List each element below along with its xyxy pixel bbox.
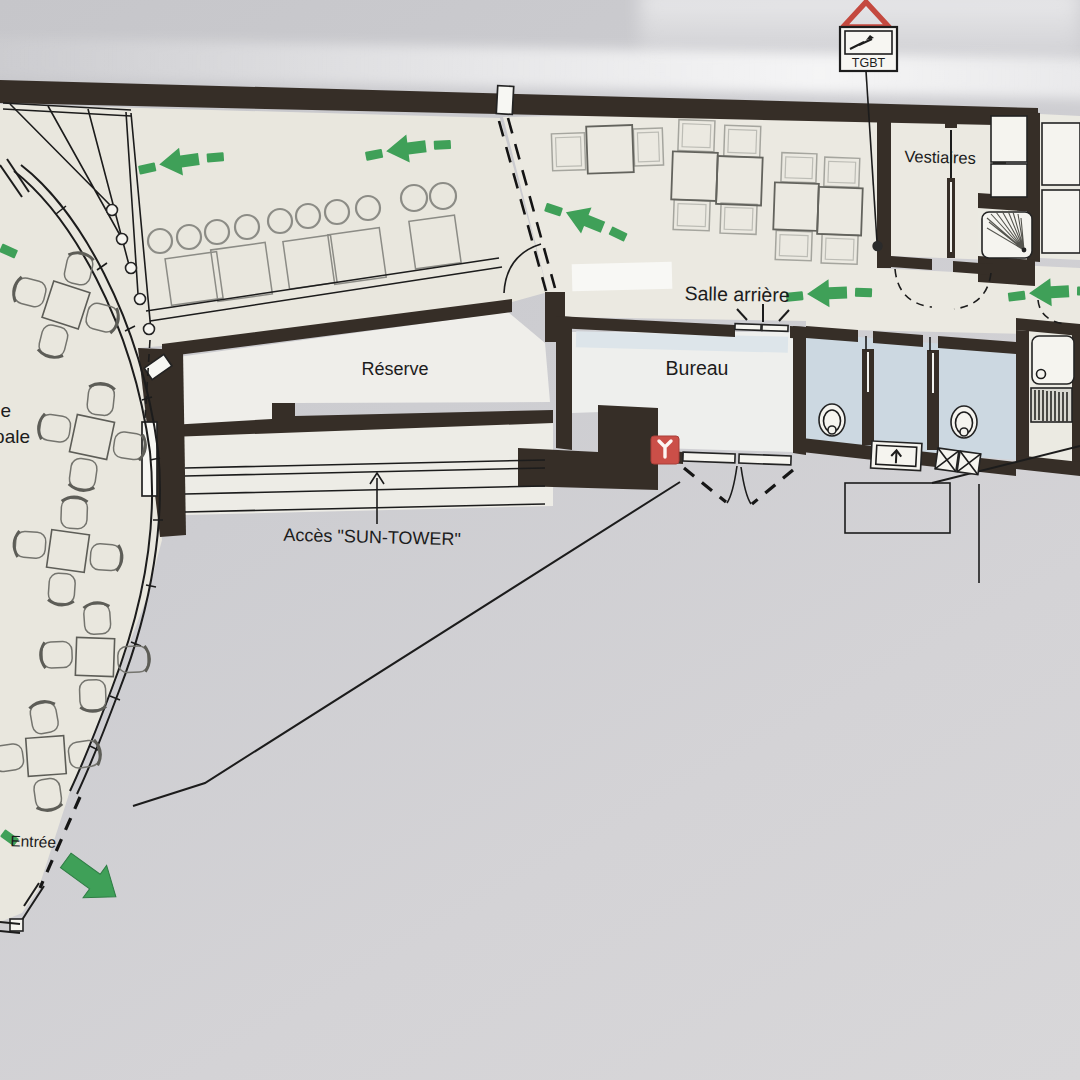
wall-vestiaires-stub — [945, 110, 957, 128]
wall-top-opening — [496, 86, 513, 115]
label-entree: Entrée — [10, 832, 56, 851]
label-vestiaires: Vestiaires — [904, 147, 976, 167]
vent-hatch-icon — [935, 448, 959, 472]
label-salle-arriere: Salle arrière — [684, 282, 790, 306]
entrance-arrow-icon — [54, 844, 128, 913]
vent-hatch-icon — [957, 451, 981, 475]
fire-extinguisher-icon — [651, 436, 679, 464]
label-salle-principale-cut-1: e — [0, 400, 11, 421]
room-salle-principale — [0, 104, 548, 922]
tgbt-sign: TGBT — [840, 2, 897, 71]
label-reserve: Réserve — [361, 359, 428, 379]
toilet-icon — [951, 406, 977, 438]
urinal-icon — [871, 441, 922, 471]
evacuation-plan-photo: TGBT Vestiaires Salle arrière Bureau Rés… — [0, 0, 1080, 1080]
whiteout-patch — [572, 262, 673, 292]
floor-plan-drawing: TGBT Vestiaires Salle arrière Bureau Rés… — [0, 0, 1080, 1080]
door-bureau-double — [683, 452, 793, 504]
warning-triangle-icon — [843, 2, 889, 27]
wall-bureau-right — [793, 326, 806, 455]
cellar-hatch-outline — [845, 483, 950, 533]
label-bureau: Bureau — [666, 357, 729, 379]
tgbt-label: TGBT — [852, 56, 886, 70]
wall-bureau-left — [556, 316, 572, 450]
label-acces-sun-tower: Accès "SUN-TOWER" — [283, 525, 461, 550]
tgbt-location-dot — [872, 241, 882, 251]
shower-icon — [982, 211, 1032, 258]
toilet-icon — [819, 404, 845, 436]
sink-icon — [1031, 336, 1074, 422]
label-salle-principale-cut-2: pale — [0, 426, 30, 447]
wall-sink-left — [1016, 330, 1029, 462]
wall-vestiaires-bottom-a — [891, 256, 932, 270]
